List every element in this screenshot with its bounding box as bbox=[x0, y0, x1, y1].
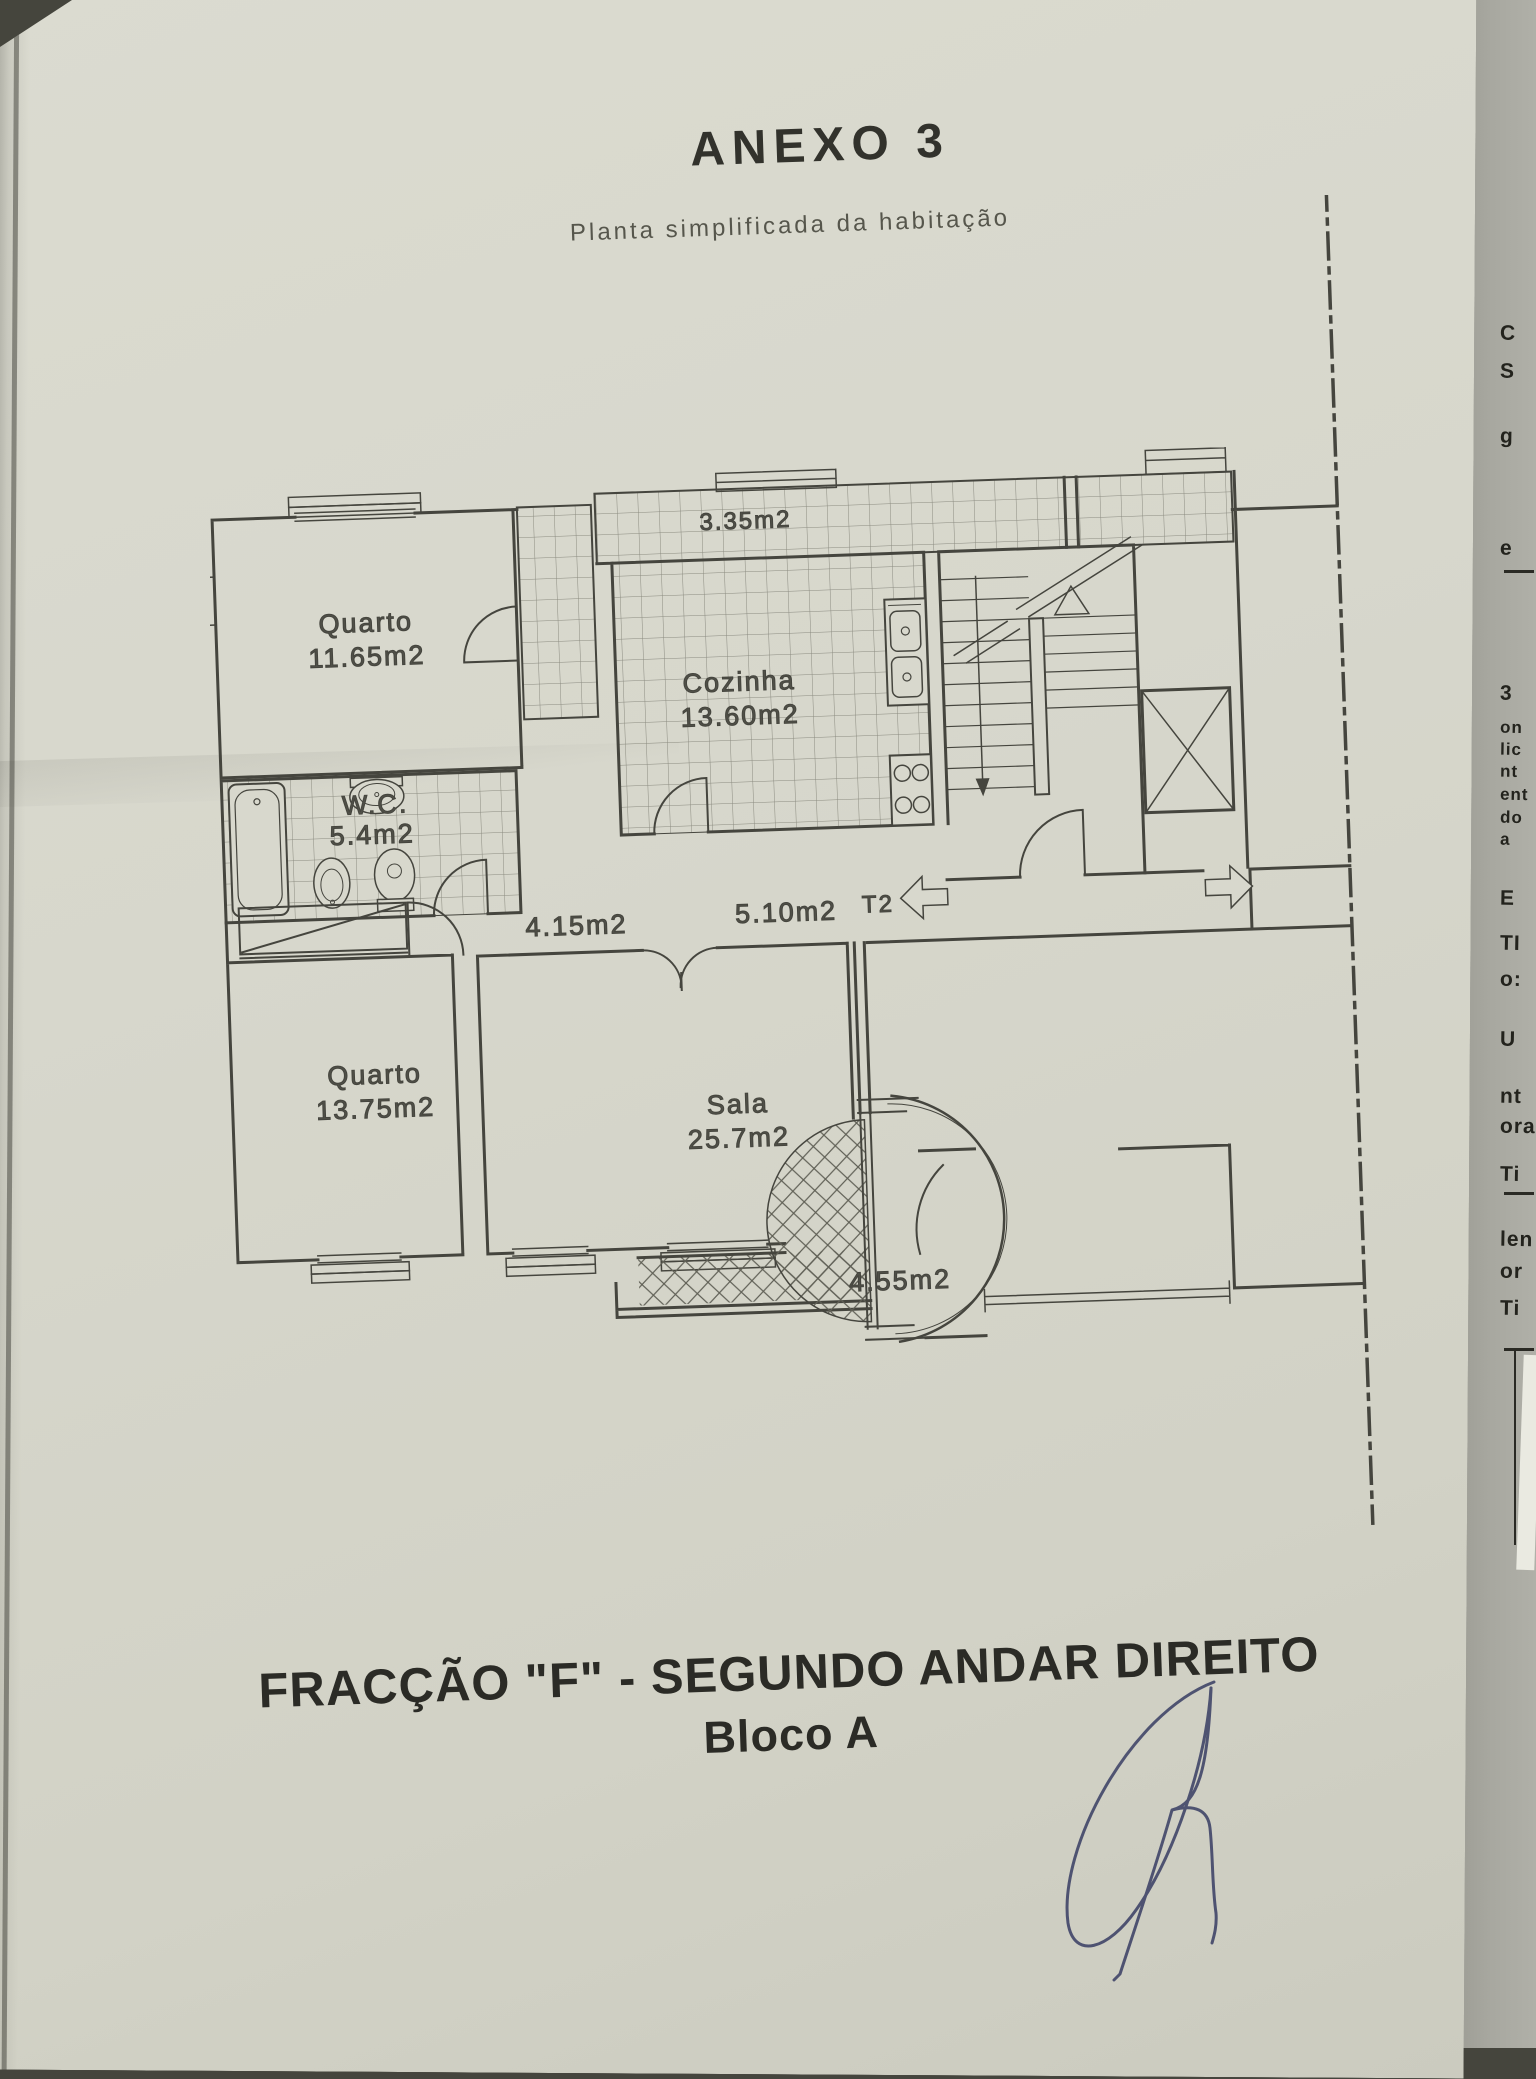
zone-label-balcony: 4.55m2 bbox=[849, 1264, 952, 1298]
edge-text-fragment: U bbox=[1500, 1028, 1536, 1055]
edge-text-fragment: or bbox=[1500, 1260, 1536, 1287]
room-label-cozinha-area: 13.60m2 bbox=[680, 699, 800, 733]
edge-text-fragment: 3 bbox=[1500, 682, 1536, 709]
room-label-wc-area: 5.4m2 bbox=[329, 818, 415, 851]
edge-text-fragment: a bbox=[1500, 830, 1536, 857]
floor-plan: 3.35m2 Quarto 11.65m2 Cozinha 13.60m2 W.… bbox=[210, 195, 1380, 1560]
entry-arrow-icon bbox=[1205, 865, 1253, 909]
edge-rule bbox=[1504, 1348, 1534, 1351]
room-label-quarto2-area: 13.75m2 bbox=[316, 1092, 436, 1126]
entry-arrow-icon bbox=[900, 876, 948, 920]
edge-rule bbox=[1504, 1192, 1534, 1195]
edge-text-fragment: ora bbox=[1500, 1115, 1536, 1142]
edge-text-fragment: TI bbox=[1500, 932, 1536, 959]
room-label-cozinha-name: Cozinha bbox=[682, 665, 796, 699]
double-door-arcs bbox=[642, 948, 718, 992]
handwritten-signature bbox=[1040, 1658, 1270, 2028]
edge-text-fragment: C bbox=[1500, 322, 1536, 349]
edge-text-fragment: Ti bbox=[1500, 1163, 1536, 1190]
section-break-lines bbox=[950, 537, 1146, 664]
terrace-tiles bbox=[594, 472, 1233, 564]
room-label-quarto2-name: Quarto bbox=[327, 1058, 423, 1091]
bathtub-icon bbox=[228, 783, 289, 917]
edge-text-fragment: g bbox=[1500, 425, 1536, 452]
edge-text-fragment: Ti bbox=[1500, 1297, 1536, 1324]
zone-label-hall: 5.10m2 bbox=[735, 896, 838, 930]
stairs-direction-arrow bbox=[969, 576, 991, 796]
door-arc bbox=[1018, 810, 1085, 877]
zone-label-corridor: 4.15m2 bbox=[525, 909, 628, 943]
photographed-scan: { "title": "ANEXO 3", "subtitle": "Plant… bbox=[0, 0, 1536, 2048]
kitchen-sink-icon bbox=[884, 598, 929, 705]
edge-text-fragment: o: bbox=[1500, 968, 1536, 995]
room-label-quarto1-name: Quarto bbox=[318, 606, 414, 639]
stove-icon bbox=[890, 754, 933, 825]
edge-rule bbox=[1514, 1350, 1516, 1545]
elevator-icon bbox=[1142, 688, 1234, 813]
fraction-label: FRACÇÃO "F" bbox=[258, 1652, 606, 1718]
unit-type-label: T2 bbox=[861, 891, 894, 919]
edge-text-fragment: S bbox=[1500, 360, 1536, 387]
boundary-dashdot-line bbox=[1326, 195, 1373, 1523]
room-label-quarto1-area: 11.65m2 bbox=[308, 640, 426, 674]
edge-rule bbox=[1504, 570, 1534, 573]
room-label-wc-name: W.C. bbox=[341, 788, 409, 820]
door-arc bbox=[914, 1165, 946, 1254]
door-arc bbox=[462, 607, 518, 663]
edge-text-fragment: len bbox=[1500, 1228, 1536, 1255]
room-label-sala-name: Sala bbox=[706, 1088, 769, 1120]
edge-text-fragment: E bbox=[1500, 887, 1536, 914]
marquise-tiles bbox=[517, 505, 598, 719]
edge-text-fragment: nt bbox=[1500, 1085, 1536, 1112]
room-label-sala-area: 25.7m2 bbox=[687, 1121, 790, 1155]
edge-text-fragment: e bbox=[1500, 537, 1536, 564]
zone-label-terrace: 3.35m2 bbox=[699, 506, 792, 536]
